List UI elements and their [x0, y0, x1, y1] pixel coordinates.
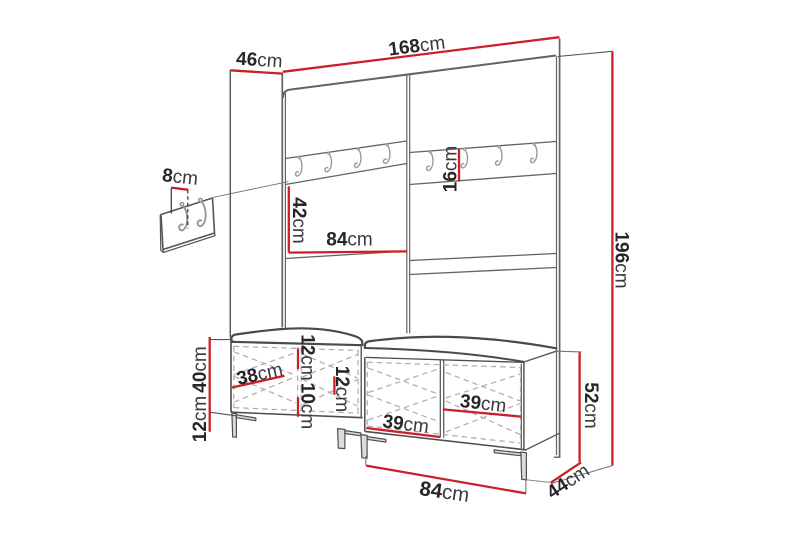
svg-text:12cm: 12cm	[297, 334, 318, 380]
svg-text:84cm: 84cm	[326, 230, 372, 251]
svg-text:42cm: 42cm	[288, 197, 309, 243]
svg-text:52cm: 52cm	[580, 382, 601, 428]
svg-text:12cm: 12cm	[190, 396, 211, 442]
svg-text:16cm: 16cm	[441, 146, 462, 192]
svg-text:46cm: 46cm	[236, 49, 284, 73]
svg-text:12cm: 12cm	[331, 366, 352, 412]
svg-text:10cm: 10cm	[297, 383, 318, 429]
svg-text:196cm: 196cm	[611, 231, 632, 288]
svg-text:8cm: 8cm	[161, 165, 199, 190]
svg-text:40cm: 40cm	[190, 346, 211, 392]
